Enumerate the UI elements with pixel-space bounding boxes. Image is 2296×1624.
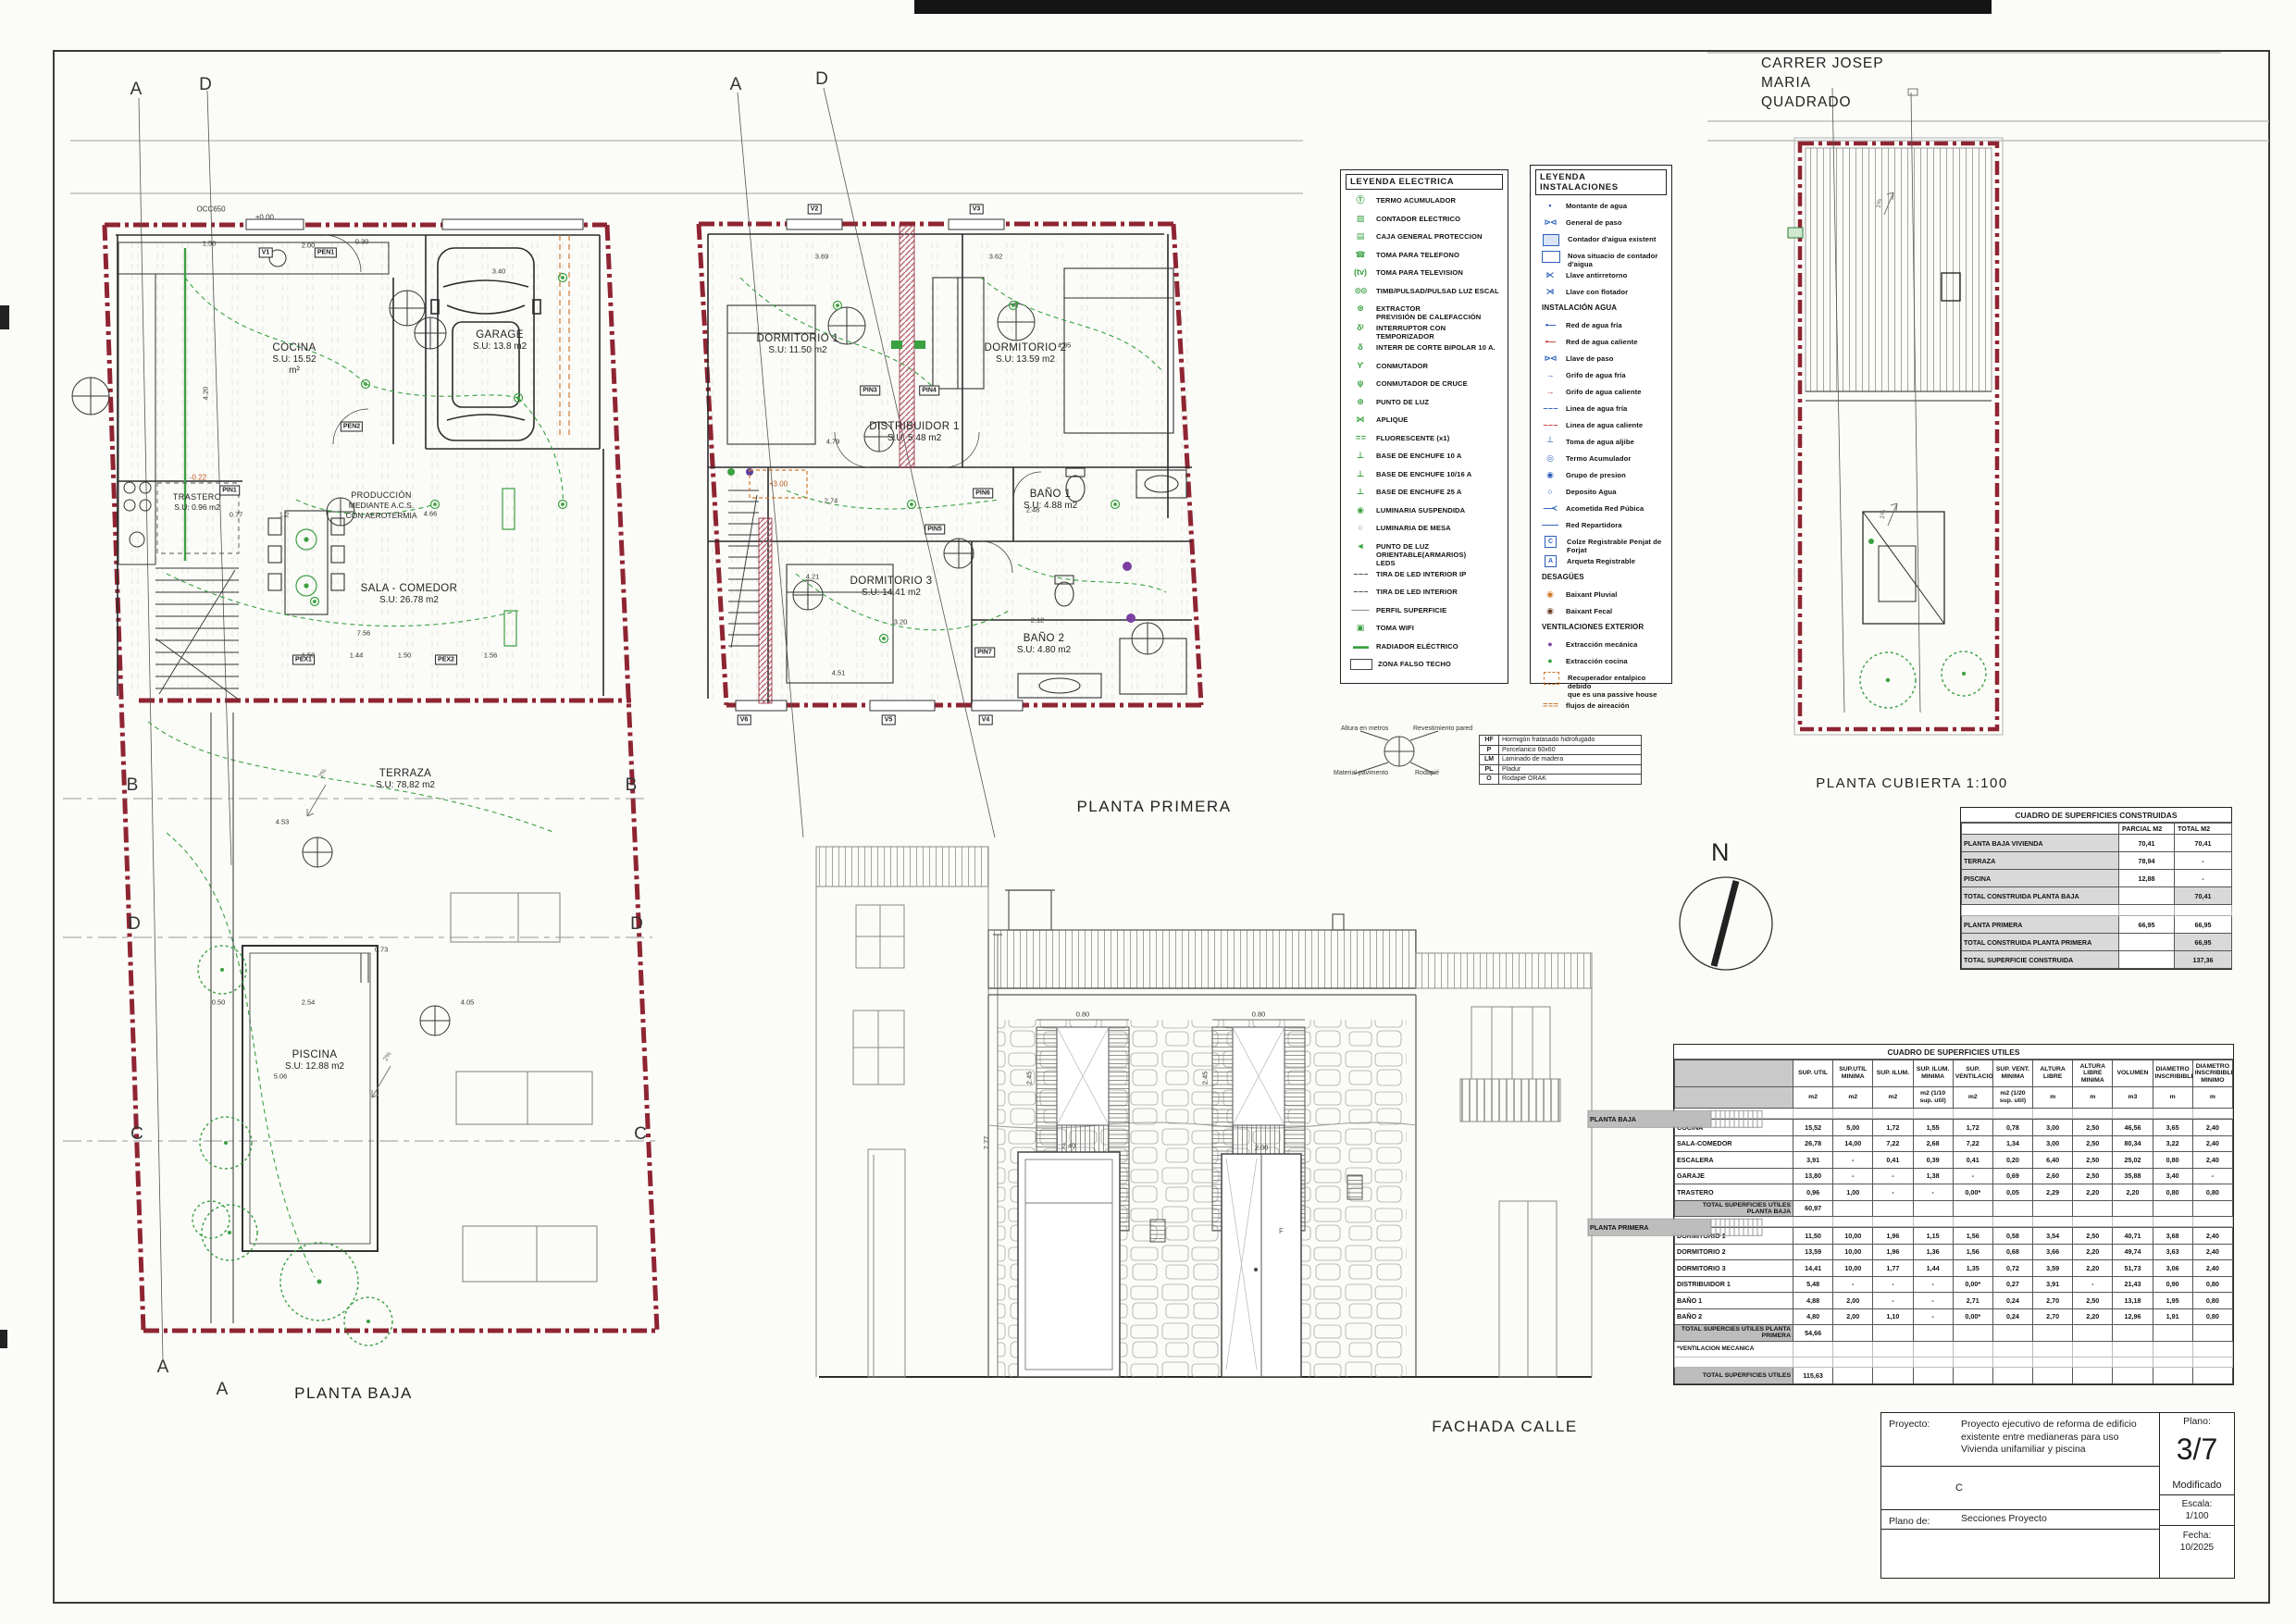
- legend-item: – – – Linea de agua caliente: [1534, 418, 1668, 435]
- utiles-cell: [2153, 1109, 2192, 1119]
- table-row: TOTAL SUPERFICIE CONSTRUIDA 137,36: [1962, 951, 2232, 969]
- utiles-cell: 5,48: [1793, 1276, 1833, 1293]
- legend-label: PUNTO DE LUZ: [1376, 395, 1429, 406]
- legend-icon: ●: [1534, 655, 1566, 666]
- utiles-cell: 1,77: [1873, 1260, 1913, 1277]
- utiles-cell: [2192, 1341, 2232, 1357]
- utiles-cell: 115,63: [1793, 1368, 1833, 1384]
- legend-label: TOMA PARA TELEFONO: [1376, 248, 1459, 259]
- legend-icon: [1543, 234, 1559, 246]
- dimension: 7.77: [983, 1136, 991, 1150]
- legend-item: C Colze Registrable Penjat de Forjat: [1534, 535, 1668, 554]
- utiles-cell: 10,00: [1833, 1228, 1873, 1245]
- legend-icon: ◉: [1534, 605, 1566, 616]
- utiles-cell: [1992, 1109, 2032, 1119]
- legend-label: BASE DE ENCHUFE 25 A: [1376, 485, 1461, 496]
- utiles-cell: 0,41: [1953, 1152, 1992, 1169]
- table-row: PLANTA BAJA: [1587, 1110, 1762, 1128]
- section-letter: C: [634, 1124, 647, 1145]
- legend-label: TIRA DE LED INTERIOR: [1376, 585, 1458, 596]
- utiles-cell: [2153, 1341, 2192, 1357]
- fecha: Fecha: 10/2025: [2160, 1526, 2234, 1557]
- drawing-sheet: PLANTA BAJA PLANTA PRIMERA PLANTA CUBIER…: [0, 0, 2296, 1624]
- table-row: TOTAL SUPERCIES UTILES PLANTA PRIMERA 54…: [1675, 1325, 2233, 1342]
- utiles-cell: -: [1833, 1276, 1873, 1293]
- utiles-cell: [2073, 1325, 2113, 1342]
- utiles-col-header: ALTURA LIBRE: [2033, 1060, 2073, 1087]
- room-sala-comedor: SALA - COMEDORS.U: 26.78 m2: [361, 583, 458, 605]
- utiles-cell: [1992, 1325, 2032, 1342]
- table-row: SALA-COMEDOR 26,78 14,00 7,22 2,68 7,22 …: [1675, 1135, 2233, 1152]
- construidas-total: 66,95: [2175, 934, 2232, 951]
- utiles-cell: [2192, 1368, 2232, 1384]
- legend-label: Llave de paso: [1566, 352, 1614, 363]
- utiles-cell: 51,73: [2113, 1260, 2153, 1277]
- construidas-row-label: PLANTA BAJA VIVIENDA: [1962, 835, 2119, 852]
- legend-icon: ◄: [1345, 540, 1376, 552]
- dimension: 4.05: [1058, 341, 1072, 350]
- dimension: 2.48: [1026, 506, 1040, 514]
- tag-pin5: PIN5: [925, 525, 945, 535]
- legend-label: flujos de aireación: [1566, 699, 1630, 710]
- construidas-parcial: 12,88: [2119, 870, 2175, 887]
- table-row: PLANTA PRIMERA: [1587, 1219, 1762, 1236]
- utiles-cell: 0,05: [1992, 1184, 2032, 1201]
- planta-primera-drawing: [699, 88, 1201, 837]
- legend-item: – – – TIRA DE LED INTERIOR IP: [1345, 567, 1504, 586]
- utiles-cell: [1873, 1109, 1913, 1119]
- legend-item: Ⓣ TERMO ACUMULADOR: [1345, 193, 1504, 212]
- table-row: TOTAL CONSTRUIDA PLANTA BAJA 70,41: [1962, 887, 2232, 905]
- utiles-cell: 2,20: [2113, 1184, 2153, 1201]
- dimension: 2.12: [1031, 616, 1045, 625]
- room-piscina: PISCINAS.U: 12.88 m2: [285, 1049, 344, 1072]
- utiles-cell: 0,39: [1913, 1152, 1953, 1169]
- utiles-cell: 0,00*: [1953, 1276, 1992, 1293]
- utiles-cell: 3,91: [1793, 1152, 1833, 1169]
- utiles-row-label: *VENTILACION MECANICA: [1675, 1341, 1793, 1357]
- utiles-cell: 0,80: [2192, 1184, 2232, 1201]
- utiles-row-label: BAÑO 2: [1675, 1308, 1793, 1325]
- utiles-col-blank: [1675, 1060, 1793, 1087]
- utiles-cell: 1,38: [1913, 1168, 1953, 1184]
- level-minus-022: -0.22: [190, 474, 206, 482]
- table-row: TERRAZA 78,94 -: [1962, 852, 2232, 870]
- utiles-cell: 0,68: [1992, 1244, 2032, 1260]
- utiles-cell: -: [1913, 1308, 1953, 1325]
- proyecto-label: Proyecto:: [1881, 1413, 1959, 1466]
- legend-icon: ⊥: [1345, 486, 1376, 497]
- utiles-cell: [1953, 1341, 1992, 1357]
- legend-label: INSTALACIÓN AGUA: [1542, 302, 1617, 312]
- tag-pin6: PIN6: [973, 489, 993, 499]
- tag-pin1: PIN1: [219, 486, 240, 496]
- planta-primera-title: PLANTA PRIMERA: [1076, 798, 1231, 816]
- utiles-cell: 13,59: [1793, 1244, 1833, 1260]
- table-row: TOTAL CONSTRUIDA PLANTA PRIMERA 66,95: [1962, 934, 2232, 951]
- legend-item: ⊥ BASE DE ENCHUFE 10/16 A: [1345, 467, 1504, 486]
- legend-icon: – – –: [1534, 403, 1566, 414]
- utiles-col-unit: m: [2073, 1087, 2113, 1109]
- utiles-cell: 0,00*: [1953, 1308, 1992, 1325]
- legend-label: APLIQUE: [1376, 413, 1408, 424]
- utiles-cell: [1873, 1368, 1913, 1384]
- construidas-row-label: TERRAZA: [1962, 852, 2119, 870]
- construidas-total: 70,41: [2175, 835, 2232, 852]
- utiles-cell: 0,80: [2153, 1184, 2192, 1201]
- utiles-cell: 2,70: [2033, 1308, 2073, 1325]
- legend-label: General de paso: [1566, 216, 1622, 227]
- table-row: [1962, 905, 2232, 916]
- material-desc: Hormigón fratasado hidrofugado: [1499, 736, 1642, 746]
- legend-label: CONTADOR ELECTRICO: [1376, 212, 1460, 223]
- material-row: PL Pladur: [1480, 764, 1642, 775]
- legend-label: Acometida Red Púbica: [1566, 502, 1644, 513]
- utiles-cell: 2,20: [2073, 1260, 2113, 1277]
- dimension: 3.69: [815, 253, 829, 261]
- utiles-cell: 14,00: [1833, 1135, 1873, 1152]
- legend-icon: ○: [1345, 522, 1376, 533]
- utiles-cell: [1913, 1200, 1953, 1217]
- tag-v5: V5: [882, 715, 896, 725]
- planta-cubierta-drawing: [1788, 88, 2003, 735]
- legend-icon: – – –: [1345, 586, 1376, 597]
- legend-icon: [1542, 251, 1560, 263]
- utiles-cell: -: [1833, 1152, 1873, 1169]
- legend-item: ▨ CONTADOR ELECTRICO: [1345, 212, 1504, 230]
- room-trastero: TRASTEROS.U: 0.96 m2: [173, 492, 221, 512]
- construidas-col-blank: [1962, 824, 2119, 835]
- utiles-col-unit: m: [2033, 1087, 2073, 1109]
- material-key-label: Rodapié: [1415, 770, 1439, 776]
- legend-item: Nova situacio de contador d'aigua: [1534, 249, 1668, 268]
- table-row: BAÑO 2 4,80 2,00 1,10 - 0,00* 0,24 2,70 …: [1675, 1308, 2233, 1325]
- utiles-cell: [1873, 1217, 1913, 1227]
- legend-item: ⊥ BASE DE ENCHUFE 10 A: [1345, 449, 1504, 467]
- legend-icon: ☎: [1345, 249, 1376, 260]
- utiles-col-header: SUP. VENTILACION: [1953, 1060, 1992, 1087]
- material-row: HF Hormigón fratasado hidrofugado: [1480, 736, 1642, 746]
- utiles-cell: 14,41: [1793, 1260, 1833, 1277]
- dimension: 2.00: [302, 242, 316, 250]
- material-key-circle: [1355, 731, 1438, 774]
- utiles-cell: [2073, 1341, 2113, 1357]
- dimension: 3.62: [989, 253, 1003, 261]
- legend-label: TERMO ACUMULADOR: [1376, 193, 1456, 205]
- utiles-cell: 2,50: [2073, 1168, 2113, 1184]
- legend-icon: •—: [1534, 319, 1566, 330]
- utiles-cell: [1913, 1341, 1953, 1357]
- legend-icon: ⋈: [1345, 414, 1376, 425]
- utiles-row-label: PLANTA PRIMERA: [1588, 1219, 1711, 1235]
- utiles-cell: 2,40: [2192, 1244, 2232, 1260]
- legend-item: •— Red de agua fría: [1534, 318, 1668, 335]
- utiles-cell: 1,72: [1873, 1120, 1913, 1136]
- utiles-cell: [1833, 1200, 1873, 1217]
- legend-item: ⊛ EXTRACTORPREVISIÓN DE CALEFACCIÓN: [1345, 302, 1504, 321]
- legend-item: = = = flujos de aireación: [1534, 699, 1668, 715]
- utiles-cell: 1,56: [1953, 1244, 1992, 1260]
- material-key-label: Altura en metros: [1341, 725, 1388, 732]
- legend-icon: →: [1534, 386, 1566, 397]
- utiles-cell: -: [2192, 1168, 2232, 1184]
- construidas-parcial: [2119, 934, 2175, 951]
- legend-item: Recuperador entalpico debidoque es una p…: [1534, 671, 1668, 699]
- material-row: P Porcelanico 60x60: [1480, 745, 1642, 755]
- table-row: ESCALERA 3,91 - 0,41 0,39 0,41 0,20 6,40…: [1675, 1152, 2233, 1169]
- legend-item: ▬▬ RADIADOR ELÉCTRICO: [1345, 639, 1504, 658]
- legend-label: Colze Registrable Penjat de Forjat: [1567, 535, 1668, 554]
- utiles-cell: 54,66: [1793, 1325, 1833, 1342]
- utiles-cell: 13,18: [2113, 1293, 2153, 1309]
- legend-electrica-title: LEYENDA ELECTRICA: [1346, 174, 1503, 190]
- utiles-row-label: PLANTA BAJA: [1588, 1110, 1711, 1127]
- utiles-cell: [1992, 1357, 2032, 1368]
- construidas-row-label: PLANTA PRIMERA: [1962, 916, 2119, 934]
- utiles-cell: 0,80: [2192, 1276, 2232, 1293]
- plano-de-label: Plano de:: [1881, 1510, 1959, 1529]
- legend-item: ϒ CONMUTADOR: [1345, 359, 1504, 378]
- utiles-cell: 15,52: [1793, 1120, 1833, 1136]
- legend-item: ◉ LUMINARIA SUSPENDIDA: [1345, 503, 1504, 522]
- utiles-cell: [2113, 1357, 2153, 1368]
- utiles-cell: 2,29: [2033, 1184, 2073, 1201]
- legend-icon: ⊳⊲: [1534, 217, 1566, 228]
- utiles-cell: 7,22: [1873, 1135, 1913, 1152]
- utiles-cell: [2033, 1325, 2073, 1342]
- utiles-cell: [2153, 1357, 2192, 1368]
- utiles-cell: [2192, 1109, 2232, 1119]
- utiles-cell: 46,56: [2113, 1120, 2153, 1136]
- utiles-cell: [2192, 1325, 2232, 1342]
- legend-instalaciones: LEYENDA INSTALACIONES • Montante de agua…: [1530, 165, 1672, 684]
- utiles-cell: 49,74: [2113, 1244, 2153, 1260]
- construidas-row-label: TOTAL CONSTRUIDA PLANTA PRIMERA: [1962, 934, 2119, 951]
- trees-cubierta: [1860, 651, 1986, 708]
- legend-icon: [1544, 672, 1559, 685]
- utiles-cell: 10,00: [1833, 1260, 1873, 1277]
- title-block-empty: [1881, 1530, 2159, 1578]
- construidas-total: 66,95: [2175, 916, 2232, 934]
- utiles-cell: [1953, 1368, 1992, 1384]
- utiles-col-unit: m3: [2113, 1087, 2153, 1109]
- section-letter: D: [630, 914, 643, 935]
- construidas-total: 70,41: [2175, 887, 2232, 905]
- material-key-label: Revestimiento pared: [1413, 725, 1472, 732]
- legend-label: VENTILACIONES EXTERIOR: [1542, 621, 1644, 631]
- legend-item: A Arqueta Registrable: [1534, 554, 1668, 571]
- utiles-cell: 80,34: [2113, 1135, 2153, 1152]
- legend-item: ┴ Toma de agua aljibe: [1534, 435, 1668, 452]
- legend-icon: →: [1534, 369, 1566, 380]
- construidas-parcial: [2119, 887, 2175, 905]
- utiles-cell: 0,00*: [1953, 1184, 1992, 1201]
- utiles-col-header: SUP. ILUM.: [1873, 1060, 1913, 1087]
- utiles-cell: 1,56: [1953, 1228, 1992, 1245]
- utiles-row-label: BAÑO 1: [1675, 1293, 1793, 1309]
- table-row: TOTAL SUPERFICIES UTILES 115,63: [1675, 1368, 2233, 1384]
- legend-item: ⊙⊙ TIMB/PULSAD/PULSAD LUZ ESCAL: [1345, 284, 1504, 303]
- utiles-cell: 1,36: [1913, 1244, 1953, 1260]
- utiles-cell: [2073, 1217, 2113, 1227]
- table-row: DORMITORIO 3 14,41 10,00 1,77 1,44 1,35 …: [1675, 1260, 2233, 1277]
- dimension: 0.50: [212, 998, 226, 1007]
- material-desc: Rodapié ORAK: [1499, 775, 1642, 785]
- utiles-cell: 0,24: [1992, 1293, 2032, 1309]
- legend-icon: ▣: [1345, 622, 1376, 633]
- utiles-col-unit: m2: [1953, 1087, 1992, 1109]
- utiles-cell: -: [2073, 1276, 2113, 1293]
- plano-label: Plano:: [2160, 1413, 2234, 1427]
- legend-icon: ───: [1345, 604, 1376, 615]
- legend-label: Llave con flotador: [1566, 285, 1628, 296]
- utiles-row-label: ESCALERA: [1675, 1152, 1793, 1169]
- legend-item: —— Red Repartidora: [1534, 518, 1668, 535]
- utiles-cell: 2,50: [2073, 1228, 2113, 1245]
- utiles-cell: [1873, 1325, 1913, 1342]
- utiles-col-unit: m2: [1793, 1087, 1833, 1109]
- legend-label: PUNTO DE LUZ ORIENTABLE(ARMARIOS)LEDS: [1376, 539, 1504, 567]
- dimension: 4.05: [461, 998, 475, 1007]
- construidas-row-label: PISCINA: [1962, 870, 2119, 887]
- utiles-cell: [2073, 1368, 2113, 1384]
- section-letter: D: [128, 914, 141, 935]
- dimension: 4.20: [202, 387, 210, 401]
- legend-icon: ●: [1534, 638, 1566, 650]
- legend-item: ZONA FALSO TECHO: [1345, 657, 1504, 676]
- dimension: 2.40: [1062, 1142, 1076, 1150]
- utiles-cell: 2,20: [2073, 1184, 2113, 1201]
- utiles-cell: [1913, 1357, 1953, 1368]
- utiles-cell: 1,10: [1873, 1308, 1913, 1325]
- utiles-cell: 3,65: [2153, 1120, 2192, 1136]
- section-letter: B: [127, 775, 139, 796]
- utiles-cell: [1793, 1109, 1833, 1119]
- utiles-cell: 60,97: [1793, 1200, 1833, 1217]
- legend-icon: —≺: [1534, 502, 1566, 514]
- utiles-cell: 12,96: [2113, 1308, 2153, 1325]
- dimension: 2.54: [302, 998, 316, 1007]
- construidas-parcial: 78,94: [2119, 852, 2175, 870]
- utiles-cell: [2192, 1217, 2232, 1227]
- legend-icon: = = =: [1534, 700, 1566, 711]
- table-row: *VENTILACION MECANICA: [1675, 1341, 2233, 1357]
- level-plus-300: +3.00: [769, 480, 788, 489]
- utiles-cell: 3,63: [2153, 1244, 2192, 1260]
- utiles-cell: -: [1913, 1293, 1953, 1309]
- legend-icon: ◎: [1534, 452, 1566, 464]
- legend-icon: ⊛: [1345, 303, 1376, 314]
- utiles-cell: [2113, 1341, 2153, 1357]
- escala: Escala: 1/100: [2160, 1495, 2234, 1526]
- utiles-cell: 3,91: [2033, 1276, 2073, 1293]
- material-code: LM: [1480, 755, 1499, 765]
- utiles-title: CUADRO DE SUPERFICIES UTILES: [1674, 1045, 2233, 1060]
- legend-label: TOMA PARA TELEVISION: [1376, 266, 1463, 277]
- legend-icon: •—: [1534, 336, 1566, 347]
- utiles-cell: [1953, 1109, 1992, 1119]
- utiles-cell: [1793, 1217, 1833, 1227]
- construidas-col-total: TOTAL M2: [2175, 824, 2232, 835]
- construidas-parcial: [2119, 951, 2175, 969]
- fachada-drawing: [816, 847, 1592, 1377]
- legend-item: ▣ TOMA WIFI: [1345, 621, 1504, 639]
- legend-label: Llave antirretorno: [1566, 268, 1627, 279]
- utiles-cell: [2153, 1200, 2192, 1217]
- utiles-cell: 2,60: [2033, 1168, 2073, 1184]
- legend-icon: A: [1545, 555, 1557, 567]
- legend-label: Contador d'aigua existent: [1568, 232, 1656, 243]
- proyecto-text: Proyecto ejecutivo de reforma de edifici…: [1959, 1413, 2159, 1466]
- utiles-col-header: SUP. ILUM. MINIMA: [1913, 1060, 1953, 1087]
- legend-item: ◉ Baixant Pluvial: [1534, 588, 1668, 604]
- legend-icon: ⊕: [1345, 396, 1376, 407]
- dimension: 1.44: [350, 651, 364, 660]
- legend-icon: C: [1545, 536, 1557, 548]
- legend-icon: ——: [1534, 519, 1566, 530]
- utiles-cell: [1833, 1357, 1873, 1368]
- utiles-cell: -: [1873, 1276, 1913, 1293]
- dimension: 0.73: [375, 946, 389, 954]
- utiles-cell: [1953, 1357, 1992, 1368]
- title-block: Proyecto: Proyecto ejecutivo de reforma …: [1880, 1412, 2235, 1579]
- legend-item: ● Extracción cocina: [1534, 654, 1668, 671]
- legend-label: LUMINARIA SUSPENDIDA: [1376, 503, 1465, 514]
- plano-number: 3/7: [2160, 1427, 2234, 1467]
- section-letter: A: [217, 1380, 229, 1400]
- utiles-cell: 0,80: [2153, 1152, 2192, 1169]
- legend-icon: Ⓣ: [1345, 194, 1376, 205]
- legend-label: Grifo de agua caliente: [1566, 385, 1642, 396]
- material-desc: Pladur: [1499, 764, 1642, 775]
- utiles-cell: [2153, 1217, 2192, 1227]
- table-row: DORMITORIO 2 13,59 10,00 1,96 1,36 1,56 …: [1675, 1244, 2233, 1260]
- legend-label: CONMUTADOR: [1376, 359, 1428, 370]
- utiles-row-label: DORMITORIO 3: [1675, 1260, 1793, 1277]
- legend-icon: ϒ: [1345, 360, 1376, 371]
- utiles-cell: [2153, 1368, 2192, 1384]
- utiles-cell: 0,41: [1873, 1152, 1913, 1169]
- legend-label: Grupo de presion: [1566, 468, 1626, 479]
- room-dormitorio-2: DORMITORIO 2S.U: 13.59 m2: [985, 342, 1067, 365]
- tag-pen1: PEN1: [315, 248, 337, 258]
- legend-item: – – – TIRA DE LED INTERIOR: [1345, 585, 1504, 603]
- utiles-cell: 1,95: [2153, 1293, 2192, 1309]
- construidas-title: CUADRO DE SUPERFICIES CONSTRUIDAS: [1961, 808, 2231, 823]
- utiles-cell: [1833, 1341, 1873, 1357]
- legend-icon: ⊥: [1345, 468, 1376, 479]
- utiles-cell: 2,71: [1953, 1293, 1992, 1309]
- planta-baja-title: PLANTA BAJA: [294, 1384, 413, 1403]
- utiles-cell: 2,50: [2073, 1120, 2113, 1136]
- legend-instalaciones-list: • Montante de agua ⊳⊲ General de paso Co…: [1531, 197, 1671, 717]
- legend-item: VENTILACIONES EXTERIOR: [1534, 621, 1668, 638]
- legend-icon: δ: [1345, 341, 1376, 353]
- legend-item: ⊳⊲ General de paso: [1534, 216, 1668, 232]
- tag-v6: V6: [738, 715, 751, 725]
- utiles-cell: 1,34: [1992, 1135, 2032, 1152]
- utiles-cell: 0,20: [1992, 1152, 2032, 1169]
- utiles-cell: [2073, 1109, 2113, 1119]
- legend-label: Linea de agua fría: [1566, 402, 1627, 413]
- utiles-cell: [1913, 1109, 1953, 1119]
- dimension: 2.00: [1255, 1144, 1269, 1152]
- legend-label: Montante de agua: [1566, 199, 1627, 210]
- legend-icon: – – –: [1534, 419, 1566, 430]
- legend-item: ⋊ Llave con flotador: [1534, 285, 1668, 302]
- legend-icon: ⋊: [1534, 286, 1566, 297]
- table-row: GARAJE 13,80 - - 1,38 - 0,69 2,60 2,50 3…: [1675, 1168, 2233, 1184]
